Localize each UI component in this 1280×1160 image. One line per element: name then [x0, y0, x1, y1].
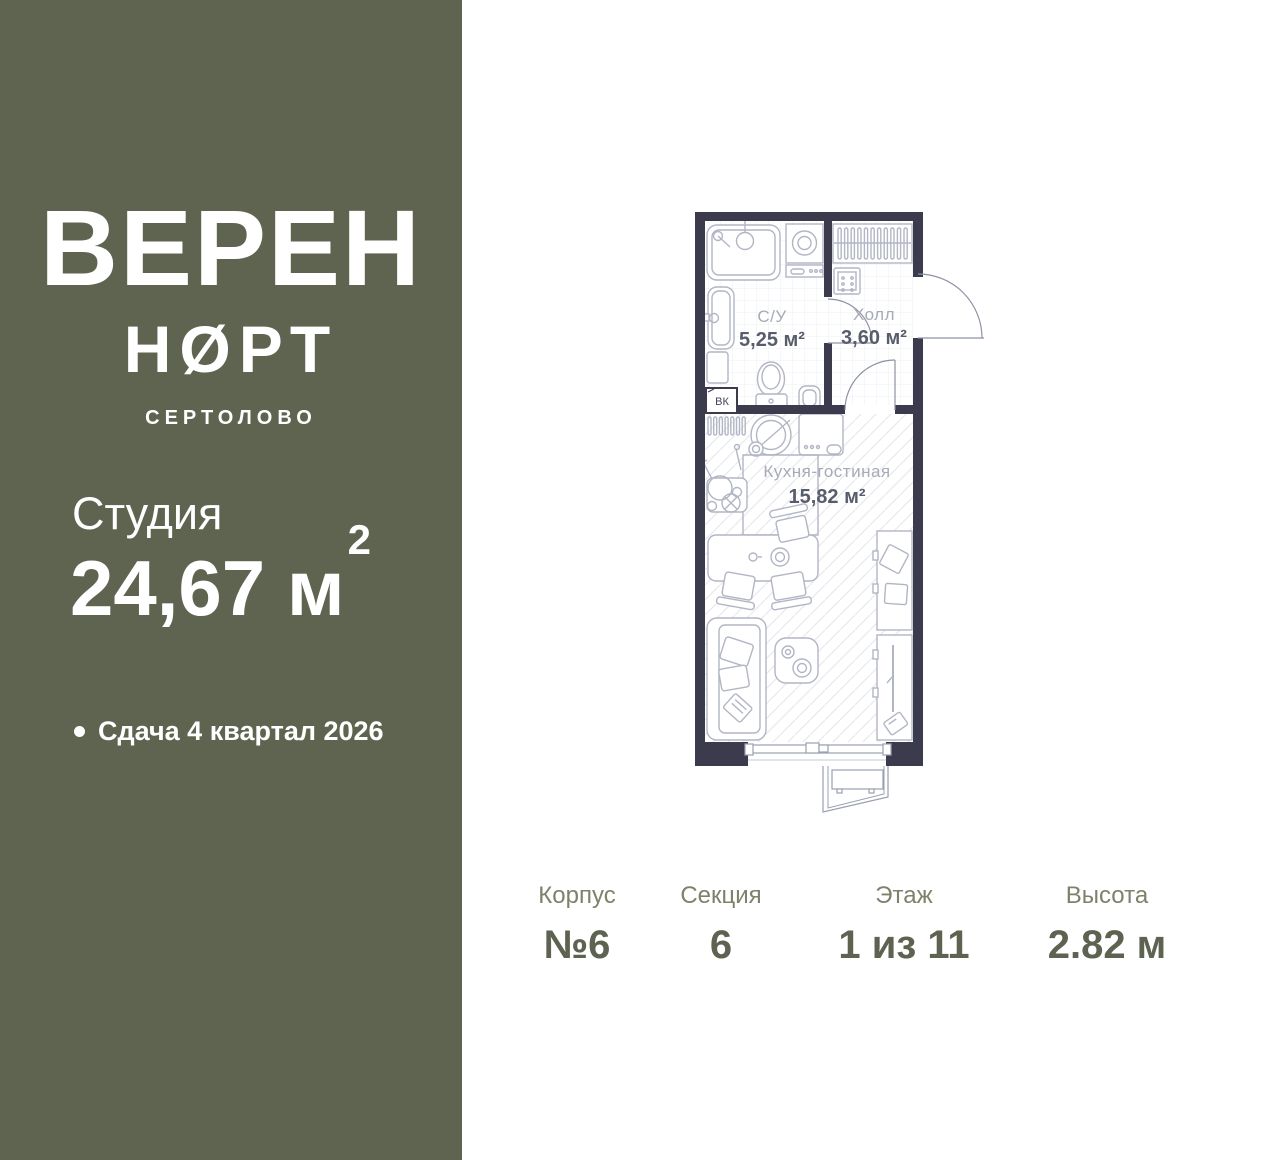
electrical-panel	[834, 268, 860, 294]
room-name-kitchen: Кухня-гостиная	[763, 462, 890, 481]
info-height: Высота 2.82 м	[1048, 882, 1167, 968]
washing-machine	[786, 224, 823, 277]
room-area-kitchen: 15,82 м²	[788, 486, 865, 508]
sofa	[707, 618, 766, 740]
listing-card: ВЕРЕН НØРТ СЕРТОЛОВО Студия 24,67 м2 Сда…	[0, 0, 1280, 1160]
stove	[799, 414, 843, 455]
brand-logo: ВЕРЕН НØРТ СЕРТОЛОВО	[0, 194, 462, 428]
toilet	[756, 362, 787, 408]
unit-area: 24,67 м2	[70, 549, 368, 627]
unit-area-sup: 2	[348, 516, 371, 563]
unit-type: Студия	[72, 488, 222, 540]
info-building: Корпус №6	[538, 882, 615, 968]
bathtub	[707, 221, 780, 280]
vent-box: ВК	[706, 388, 737, 413]
brand-city: СЕРТОЛОВО	[0, 408, 462, 428]
window	[745, 743, 891, 760]
balcony-bench	[832, 770, 883, 793]
info-height-label: Высота	[1048, 882, 1167, 910]
info-height-value: 2.82 м	[1048, 923, 1167, 968]
info-floor-label: Этаж	[838, 882, 969, 910]
room-name-su: С/У	[757, 307, 786, 326]
info-floor-value: 1 из 11	[838, 923, 969, 968]
brand-line2: НØРТ	[0, 316, 462, 382]
bathroom-shelf	[707, 352, 728, 383]
info-section: Секция 6	[680, 882, 761, 968]
info-section-value: 6	[680, 923, 761, 968]
sidebar: ВЕРЕН НØРТ СЕРТОЛОВО Студия 24,67 м2 Сда…	[0, 0, 462, 1160]
balcony	[823, 766, 888, 812]
wardrobe	[833, 224, 912, 263]
room-name-hall: Холл	[853, 305, 895, 324]
info-section-label: Секция	[680, 882, 761, 910]
info-building-label: Корпус	[538, 882, 615, 910]
floor-plan-svg: ВК С/У	[690, 200, 1002, 840]
floor-plan: ВК С/У	[690, 200, 1002, 840]
delivery-text: Сдача 4 квартал 2026	[98, 716, 384, 747]
vent-label: ВК	[715, 396, 729, 408]
delivery-note: Сдача 4 квартал 2026	[74, 716, 384, 747]
bullet-icon	[74, 726, 85, 737]
coffee-table	[775, 638, 818, 683]
tv-unit	[873, 635, 912, 740]
cabinet	[873, 531, 912, 630]
entrance-door	[918, 274, 984, 338]
info-floor: Этаж 1 из 11	[838, 882, 969, 968]
room-area-su: 5,25 м²	[739, 329, 805, 351]
unit-area-value: 24,67 м	[70, 544, 345, 632]
room-area-hall: 3,60 м²	[841, 327, 907, 349]
info-building-value: №6	[538, 923, 615, 968]
brand-line1: ВЕРЕН	[0, 194, 462, 302]
